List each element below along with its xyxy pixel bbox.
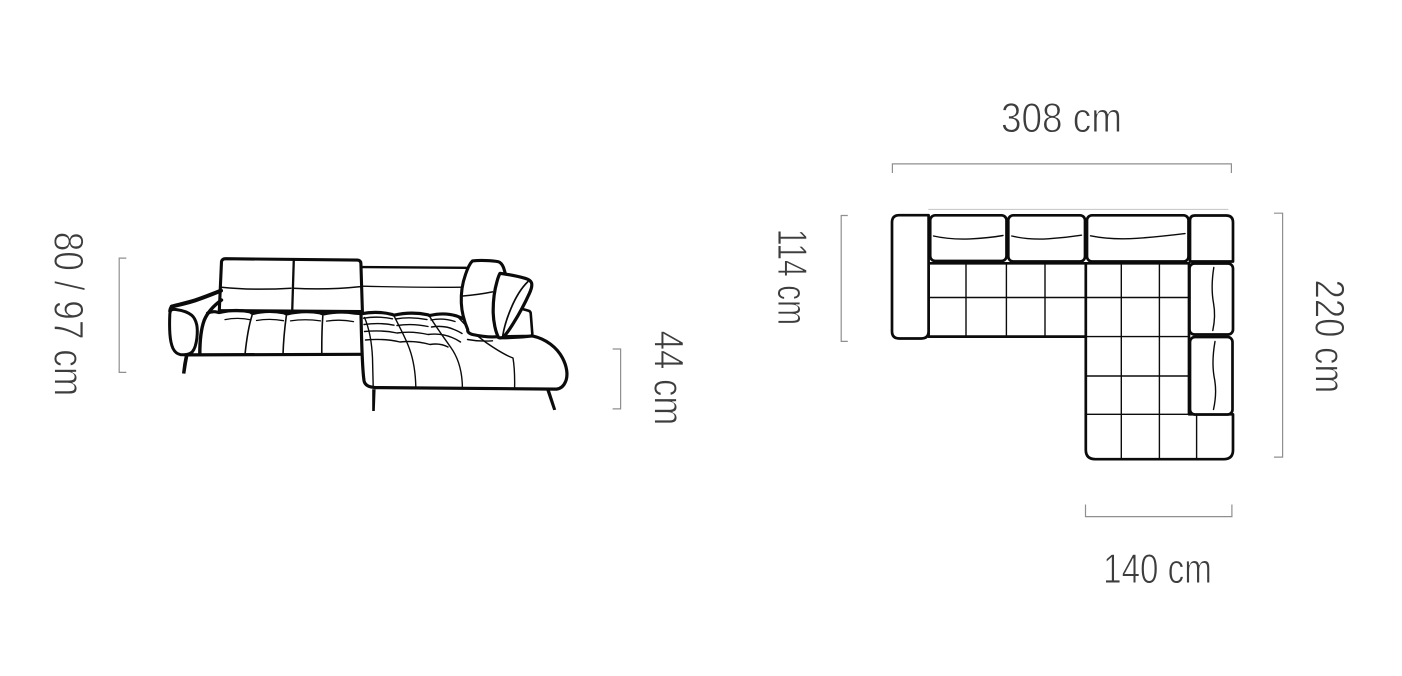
- svg-text:114 cm: 114 cm: [769, 229, 816, 325]
- svg-text:140 cm: 140 cm: [1103, 545, 1212, 592]
- svg-text:44 cm: 44 cm: [646, 331, 693, 426]
- svg-text:220 cm: 220 cm: [1306, 280, 1353, 394]
- svg-text:308 cm: 308 cm: [1001, 94, 1122, 141]
- svg-text:80 / 97 cm: 80 / 97 cm: [46, 232, 93, 397]
